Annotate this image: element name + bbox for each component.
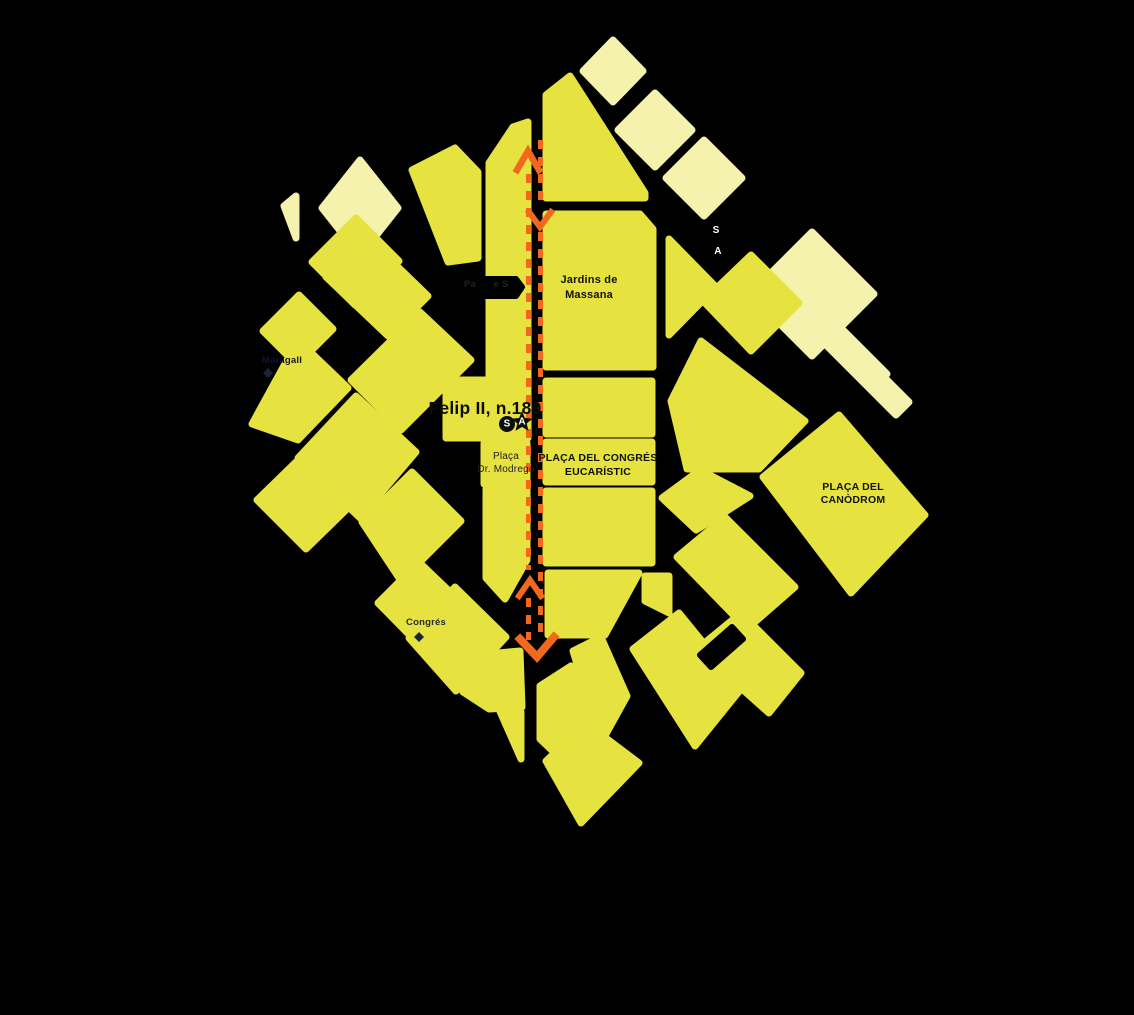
east-small-block — [662, 470, 750, 530]
fan-strip-1 — [412, 148, 478, 262]
block-se-2 — [645, 576, 669, 613]
neighborhood-map: SA Felip II, n.189Jardins deMassanaPLAÇA… — [0, 0, 1134, 1015]
start-marker-s-letter: S — [504, 419, 511, 430]
label-street-letter-s: S — [713, 225, 720, 236]
city-blocks-layer — [252, 40, 925, 823]
block-se-1 — [548, 573, 639, 635]
label-street-fragment-pa: Pa — [464, 279, 477, 290]
congres-upper-block — [546, 381, 652, 434]
route-arrow-up-mid — [519, 580, 541, 596]
pale-sliver — [284, 196, 296, 238]
dead-end-street-stub — [440, 279, 522, 296]
map-stage: SA Felip II, n.189Jardins deMassanaPLAÇA… — [0, 0, 1134, 1015]
lower-right-diamond — [677, 517, 795, 629]
pale-stripe-2 — [821, 327, 909, 415]
start-marker-s: S — [499, 416, 515, 432]
arrival-marker-a-letter: A — [518, 417, 525, 428]
label-street-letter-a: A — [714, 246, 721, 257]
maragall-metro-icon — [263, 368, 273, 378]
pale-diamond-2 — [618, 93, 692, 167]
bottom-left-triangle — [498, 707, 521, 759]
bottom-left-block — [463, 651, 522, 709]
east-band — [671, 341, 805, 469]
pale-diamond-3 — [666, 140, 742, 216]
label-felip-ii: Felip II, n.189 — [429, 398, 542, 418]
maragall-metro-icon-shape — [263, 368, 273, 378]
east-triangle — [669, 239, 716, 335]
label-street-fragment-es: e S — [494, 279, 509, 290]
label-congres-station: Congrés — [406, 617, 446, 628]
pale-diamond-1 — [583, 40, 643, 102]
route-arrow-down-bottom — [520, 637, 554, 657]
modrego-south-strip — [486, 489, 527, 599]
label-placa-canodrom: PLAÇA DELCANÒDROM — [821, 481, 886, 506]
label-maragall: Maragall — [262, 355, 302, 366]
congres-lower-block — [546, 491, 652, 563]
